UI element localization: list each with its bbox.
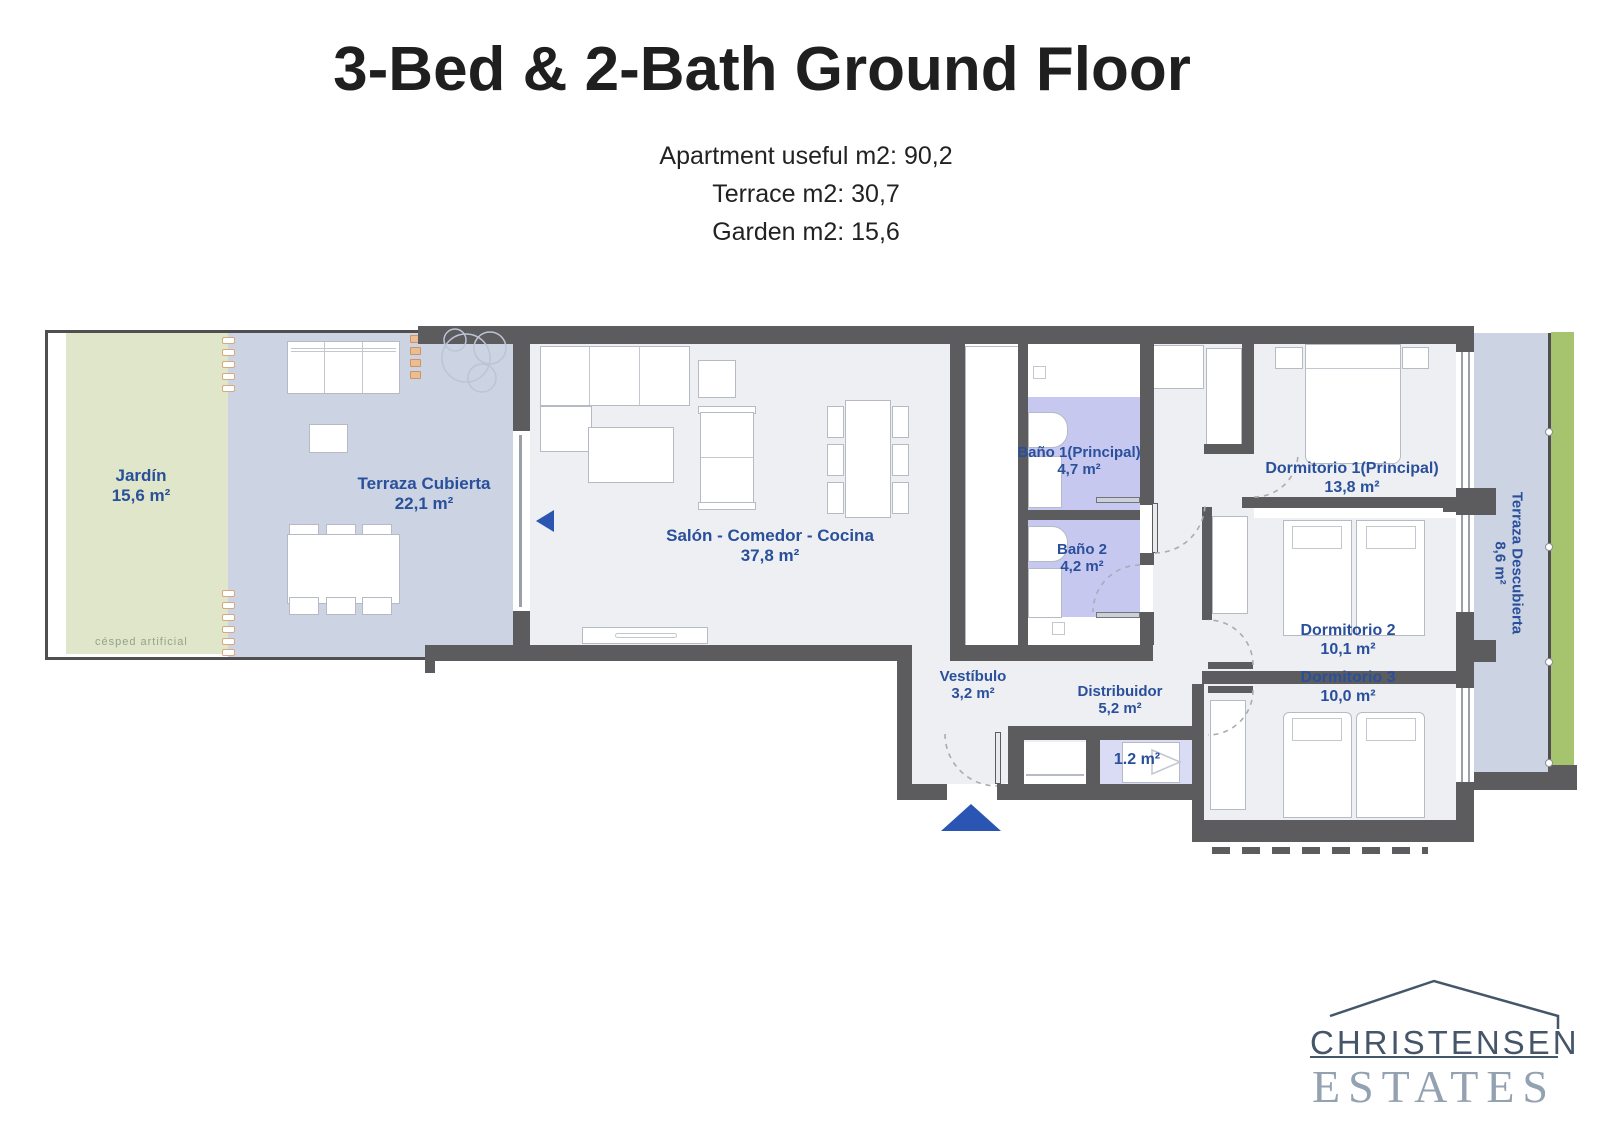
label-salon: Salón - Comedor - Cocina37,8 m² xyxy=(666,526,874,565)
label-terraza-descubierta: Terraza Descubierta8,6 m² xyxy=(1491,492,1526,634)
logo-estates: ESTATES xyxy=(1300,1060,1568,1113)
label-distribuidor: Distribuidor5,2 m² xyxy=(1078,683,1163,718)
label-dormitorio-3: Dormitorio 310,0 m² xyxy=(1300,669,1395,706)
entrance-arrow-icon xyxy=(941,804,1001,831)
label-dormitorio-2: Dormitorio 210,1 m² xyxy=(1300,622,1395,659)
plan-overlay xyxy=(0,0,1600,1131)
label-bano-2: Baño 24,2 m² xyxy=(1057,541,1107,576)
tree-icon xyxy=(442,329,506,392)
label-dormitorio-1: Dormitorio 1(Principal)13,8 m² xyxy=(1265,460,1438,497)
label-grass: césped artificial xyxy=(95,636,188,648)
label-vestibulo: Vestíbulo3,2 m² xyxy=(940,668,1007,703)
label-jardin: Jardín15,6 m² xyxy=(112,466,171,505)
terrace-arrow-icon xyxy=(536,510,554,532)
logo-divider xyxy=(1310,1056,1558,1058)
label-bano-1: Baño 1(Principal)4,7 m² xyxy=(1017,444,1140,479)
label-storage: 1.2 m² xyxy=(1114,751,1160,770)
label-terraza-cubierta: Terraza Cubierta22,1 m² xyxy=(358,474,491,513)
